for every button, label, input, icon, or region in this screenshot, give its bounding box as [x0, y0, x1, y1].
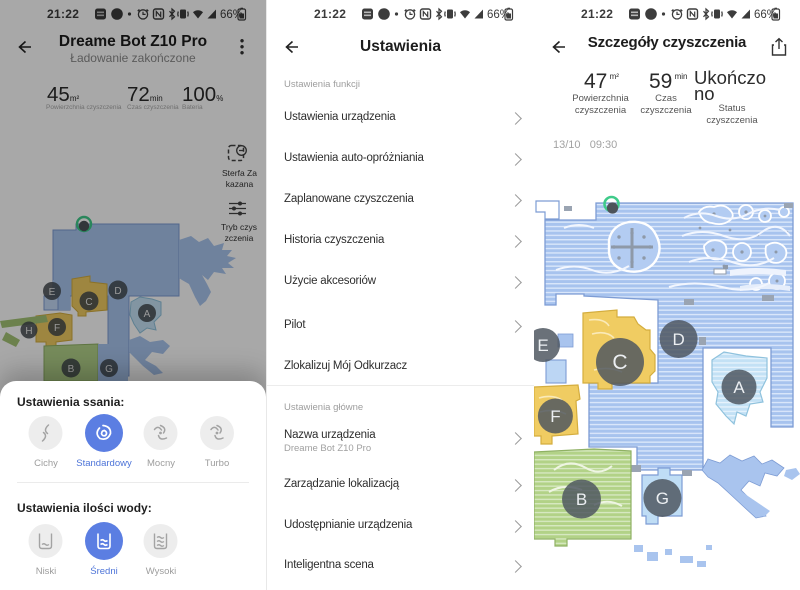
svg-text:D: D	[672, 330, 684, 349]
svg-text:B: B	[576, 490, 587, 509]
svg-text:E: E	[537, 336, 548, 355]
svg-text:C: C	[612, 351, 627, 374]
svg-text:F: F	[550, 407, 560, 426]
svg-text:G: G	[656, 489, 669, 508]
svg-text:A: A	[733, 378, 745, 397]
